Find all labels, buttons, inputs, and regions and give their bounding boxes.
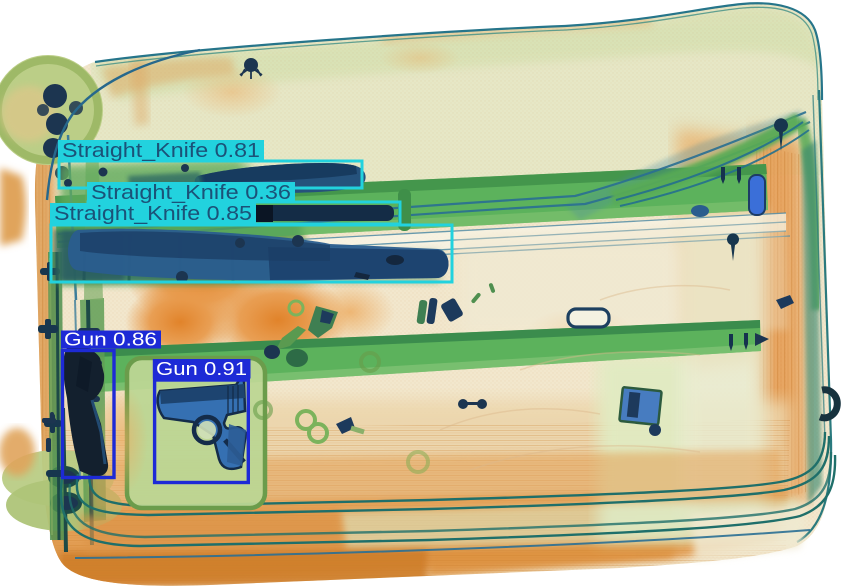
- svg-text:Straight_Knife 0.85: Straight_Knife 0.85: [54, 203, 252, 225]
- svg-text:Straight_Knife 0.36: Straight_Knife 0.36: [91, 182, 291, 204]
- svg-text:Gun 0.86: Gun 0.86: [64, 330, 157, 350]
- svg-text:Gun 0.91: Gun 0.91: [156, 359, 247, 379]
- svg-text:Straight_Knife 0.81: Straight_Knife 0.81: [62, 140, 260, 162]
